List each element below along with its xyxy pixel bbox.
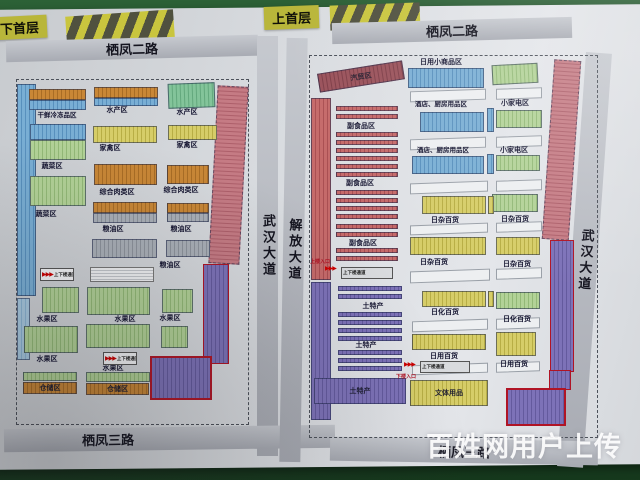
zone-block: [167, 203, 209, 213]
passage-box: 上下楼通道: [420, 361, 470, 373]
zone-block: [336, 256, 398, 261]
corridor: [496, 87, 542, 100]
zone-label: 综合肉类区: [100, 189, 135, 196]
zone-block: [492, 194, 538, 212]
zone-label: 日杂百货: [503, 261, 531, 268]
passage-label: 上下楼通道: [422, 364, 445, 370]
zone-block: 仓储区: [86, 383, 149, 395]
zone-block: [336, 140, 398, 145]
road-label-qifeng2: 栖凤二路: [106, 38, 158, 58]
corridor: [496, 179, 542, 192]
zone-label: 小家电区: [500, 147, 528, 154]
zone-label: 日用百货: [430, 353, 458, 360]
zone-block: [168, 125, 217, 140]
zone-block: [338, 358, 402, 363]
zone-block: 仓储区: [23, 382, 77, 394]
entrance-label: 下楼入口: [396, 373, 416, 380]
zone-block: [93, 126, 157, 143]
zone-label: 日杂百货: [420, 259, 448, 266]
zone-label: 日化百货: [503, 316, 531, 323]
corridor: [496, 267, 542, 280]
zone-block: [338, 366, 402, 371]
zone-block: [496, 237, 540, 255]
zone-label: 粮油区: [103, 226, 124, 233]
zone-label: 家禽区: [177, 142, 198, 149]
zone-block: [336, 132, 398, 137]
zone-label: 酒店、厨房用品区: [417, 147, 469, 154]
zone-block: [338, 328, 402, 333]
zone-label: 粮油区: [160, 262, 181, 269]
zone-label: 文体用品: [411, 381, 487, 405]
zone-block: [93, 213, 157, 223]
zone-block: [336, 172, 398, 177]
zone-block: 土特产: [314, 378, 406, 404]
zone-label: 日杂百货: [431, 217, 459, 224]
zone-block: [167, 165, 209, 184]
zone-block: [94, 98, 158, 106]
zone-label: 干鲜冷冻品区: [38, 112, 77, 119]
zone-label: 副食品区: [347, 123, 375, 130]
floor-badge-upper: 上首层: [264, 5, 320, 30]
zone-block: [338, 312, 402, 317]
zone-label: 蔬菜区: [42, 163, 63, 170]
zone-block: [336, 106, 398, 111]
zone-block: [168, 82, 216, 109]
zone-block: [336, 114, 398, 119]
zone-block: [162, 289, 193, 313]
zone-block: [30, 176, 86, 206]
zone-block: [87, 287, 150, 315]
zone-block: [336, 148, 398, 153]
zone-block: [488, 291, 494, 307]
zone-block: [150, 356, 212, 400]
zone-label: 水果区: [37, 316, 58, 323]
passage-box: ▶▶▶ 上下楼通道: [40, 268, 74, 281]
stair-arrows-icon: ▶▶▶: [325, 266, 336, 272]
zone-block: [336, 156, 398, 161]
zone-block: [408, 68, 484, 88]
passage-label: 上下楼通道: [117, 356, 137, 362]
road-label-qifeng3: 栖凤三路: [82, 429, 134, 449]
road-label-wuhan: 武汉大道: [258, 214, 277, 278]
zone-block: [338, 286, 402, 291]
stair-arrows-icon: ▶▶▶: [42, 272, 53, 278]
zone-block: [166, 240, 210, 257]
zone-block: [30, 140, 86, 160]
zone-block: [422, 291, 486, 307]
zone-block: [549, 370, 571, 390]
zone-label: 小家电区: [501, 100, 529, 107]
zone-label: 仓储区: [87, 384, 148, 394]
zone-block: [487, 108, 494, 132]
zone-block: [338, 350, 402, 355]
zone-label: 蔬菜区: [36, 211, 57, 218]
escalator-diagram: [90, 267, 154, 282]
zone-block: [487, 154, 494, 174]
zone-label: 水产区: [107, 107, 128, 114]
zone-block: [29, 89, 86, 100]
zone-block: [203, 264, 229, 364]
zone-block: [336, 206, 398, 211]
zone-block: 文体用品: [410, 380, 488, 406]
zone-block: [30, 124, 86, 140]
zone-label: 副食品区: [349, 240, 377, 247]
passage-box: 上下楼通道: [341, 267, 393, 279]
zone-block: [23, 372, 77, 381]
zone-label: 水果区: [103, 365, 124, 372]
zone-block: [94, 87, 158, 98]
road-label-jiefang: 解放大道: [283, 218, 303, 282]
passage-label: 上下楼通道: [343, 270, 366, 276]
road-band-wuhan-left-panel: 武汉大道: [257, 36, 278, 456]
zone-block: [410, 237, 486, 255]
zone-block: [336, 224, 398, 229]
zone-block: [336, 232, 398, 237]
zone-label: 日用小商品区: [420, 59, 462, 66]
zone-block: [93, 202, 157, 213]
zone-label: 副食品区: [346, 180, 374, 187]
zone-block: [42, 287, 79, 313]
zone-label: 日杂百货: [501, 216, 529, 223]
zone-block: [496, 110, 542, 128]
zone-block: [336, 198, 398, 203]
zone-block: [412, 334, 486, 350]
zone-block: [336, 214, 398, 219]
zone-block: [422, 196, 486, 214]
entrance-label: 上楼入口: [310, 258, 330, 265]
watermark: 百姓网用户上传: [426, 425, 622, 464]
zone-block: [420, 112, 484, 132]
zone-label: 日化百货: [431, 309, 459, 316]
sign-photo: 下首层 上首层 栖凤二路 武汉大道 栖凤三路 仓储区 仓储区: [0, 0, 640, 480]
zone-label: 仓储区: [24, 383, 76, 393]
zone-block: [336, 164, 398, 169]
zone-label: 土特产: [356, 342, 377, 349]
zone-label: 水果区: [160, 315, 181, 322]
passage-label: 上下楼通道: [54, 272, 74, 278]
zone-label: 粮油区: [171, 226, 192, 233]
zone-block: [550, 240, 574, 372]
zone-block: [336, 248, 398, 253]
zone-label: 家禽区: [100, 145, 121, 152]
zone-block: [492, 63, 539, 85]
zone-block: [506, 388, 566, 426]
passage-box: ▶▶▶ 上下楼通道: [103, 352, 137, 365]
road-label-qifeng2: 栖凤二路: [426, 20, 478, 40]
zone-block: [311, 98, 331, 280]
zone-block: [86, 324, 150, 348]
zone-block: [488, 196, 494, 214]
zone-block: [86, 372, 150, 382]
zone-label: 水果区: [37, 356, 58, 363]
zone-block: [92, 239, 157, 258]
zone-label: 酒店、厨房用品区: [415, 101, 467, 108]
zone-block: [496, 155, 540, 171]
zone-label: 水产区: [177, 109, 198, 116]
zone-block: [496, 332, 536, 356]
floor-badge-lower: 下首层: [0, 15, 48, 41]
zone-block: [161, 326, 188, 348]
zone-block: [336, 190, 398, 195]
zone-label: 综合肉类区: [164, 187, 199, 194]
zone-label: 土特产: [315, 379, 405, 403]
zone-label: 土特产: [363, 303, 384, 310]
zone-block: [338, 320, 402, 325]
zone-block: [412, 156, 484, 174]
zone-block: [496, 292, 540, 309]
stair-arrows-icon: ▶▶▶: [105, 356, 116, 362]
zone-label: 日用百货: [500, 361, 528, 368]
zone-block: [167, 213, 209, 222]
zone-label: 水果区: [115, 316, 136, 323]
zone-block: [338, 294, 402, 299]
zone-block: [24, 326, 78, 353]
zone-block: [94, 164, 157, 185]
zone-block: [29, 100, 86, 110]
stair-arrows-icon: ▶▶▶: [404, 362, 415, 368]
